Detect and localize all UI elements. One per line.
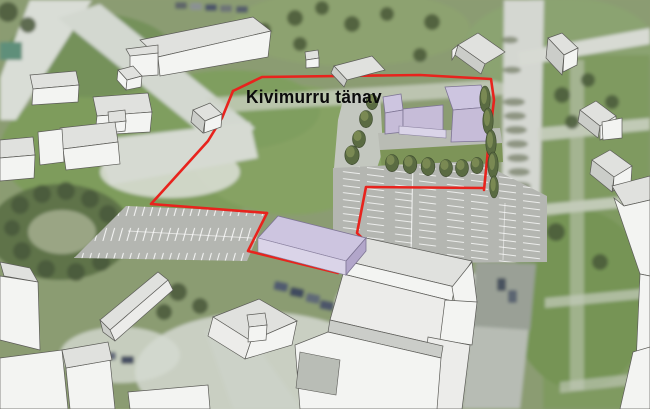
model-building-cube-north [305,50,319,68]
map-viewport[interactable]: Kivimurru tänav [0,0,650,409]
street-label: Kivimurru tänav [246,87,382,108]
map-canvas [0,0,650,409]
